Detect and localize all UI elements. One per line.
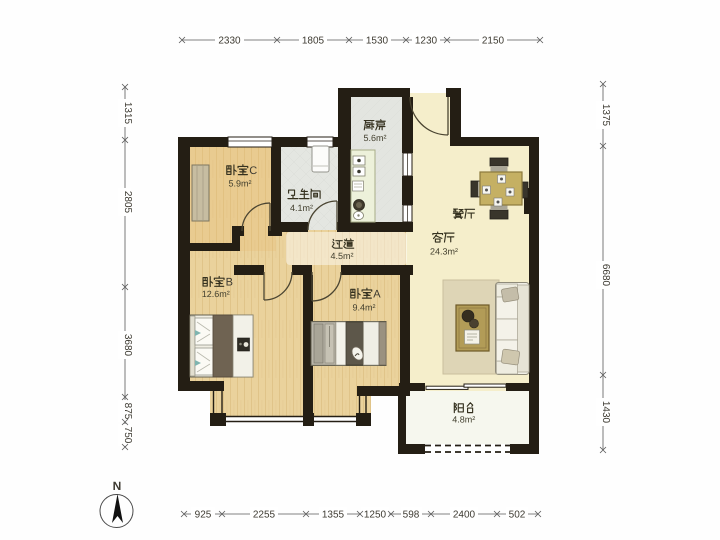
svg-text:750: 750 (122, 427, 133, 444)
svg-text:1530: 1530 (366, 36, 389, 47)
svg-text:598: 598 (403, 510, 420, 521)
svg-text:2330: 2330 (218, 36, 241, 47)
svg-text:24.3m²: 24.3m² (430, 246, 458, 256)
svg-text:2255: 2255 (253, 510, 276, 521)
svg-text:1430: 1430 (600, 401, 611, 424)
svg-text:9.4m²: 9.4m² (352, 303, 375, 313)
svg-text:2400: 2400 (453, 510, 476, 521)
svg-text:2150: 2150 (482, 36, 505, 47)
svg-text:1805: 1805 (302, 36, 325, 47)
svg-text:1250: 1250 (364, 510, 387, 521)
svg-text:A: A (373, 289, 381, 301)
svg-text:925: 925 (195, 510, 212, 521)
svg-text:B: B (226, 277, 233, 289)
svg-text:502: 502 (509, 510, 526, 521)
svg-text:1230: 1230 (415, 36, 438, 47)
svg-text:C: C (249, 165, 257, 177)
svg-text:6680: 6680 (600, 264, 611, 287)
svg-text:12.6m²: 12.6m² (202, 289, 230, 299)
svg-text:N: N (113, 479, 122, 493)
svg-text:4.1m²: 4.1m² (290, 203, 313, 213)
svg-text:875: 875 (122, 403, 133, 420)
svg-text:3680: 3680 (122, 334, 133, 357)
svg-text:5.6m²: 5.6m² (363, 133, 386, 143)
svg-text:2805: 2805 (122, 191, 133, 214)
svg-text:5.9m²: 5.9m² (228, 179, 251, 189)
svg-text:1315: 1315 (122, 102, 133, 125)
svg-text:1355: 1355 (322, 510, 345, 521)
svg-text:4.5m²: 4.5m² (330, 251, 353, 261)
svg-text:1375: 1375 (600, 104, 611, 127)
svg-text:4.8m²: 4.8m² (452, 415, 475, 425)
